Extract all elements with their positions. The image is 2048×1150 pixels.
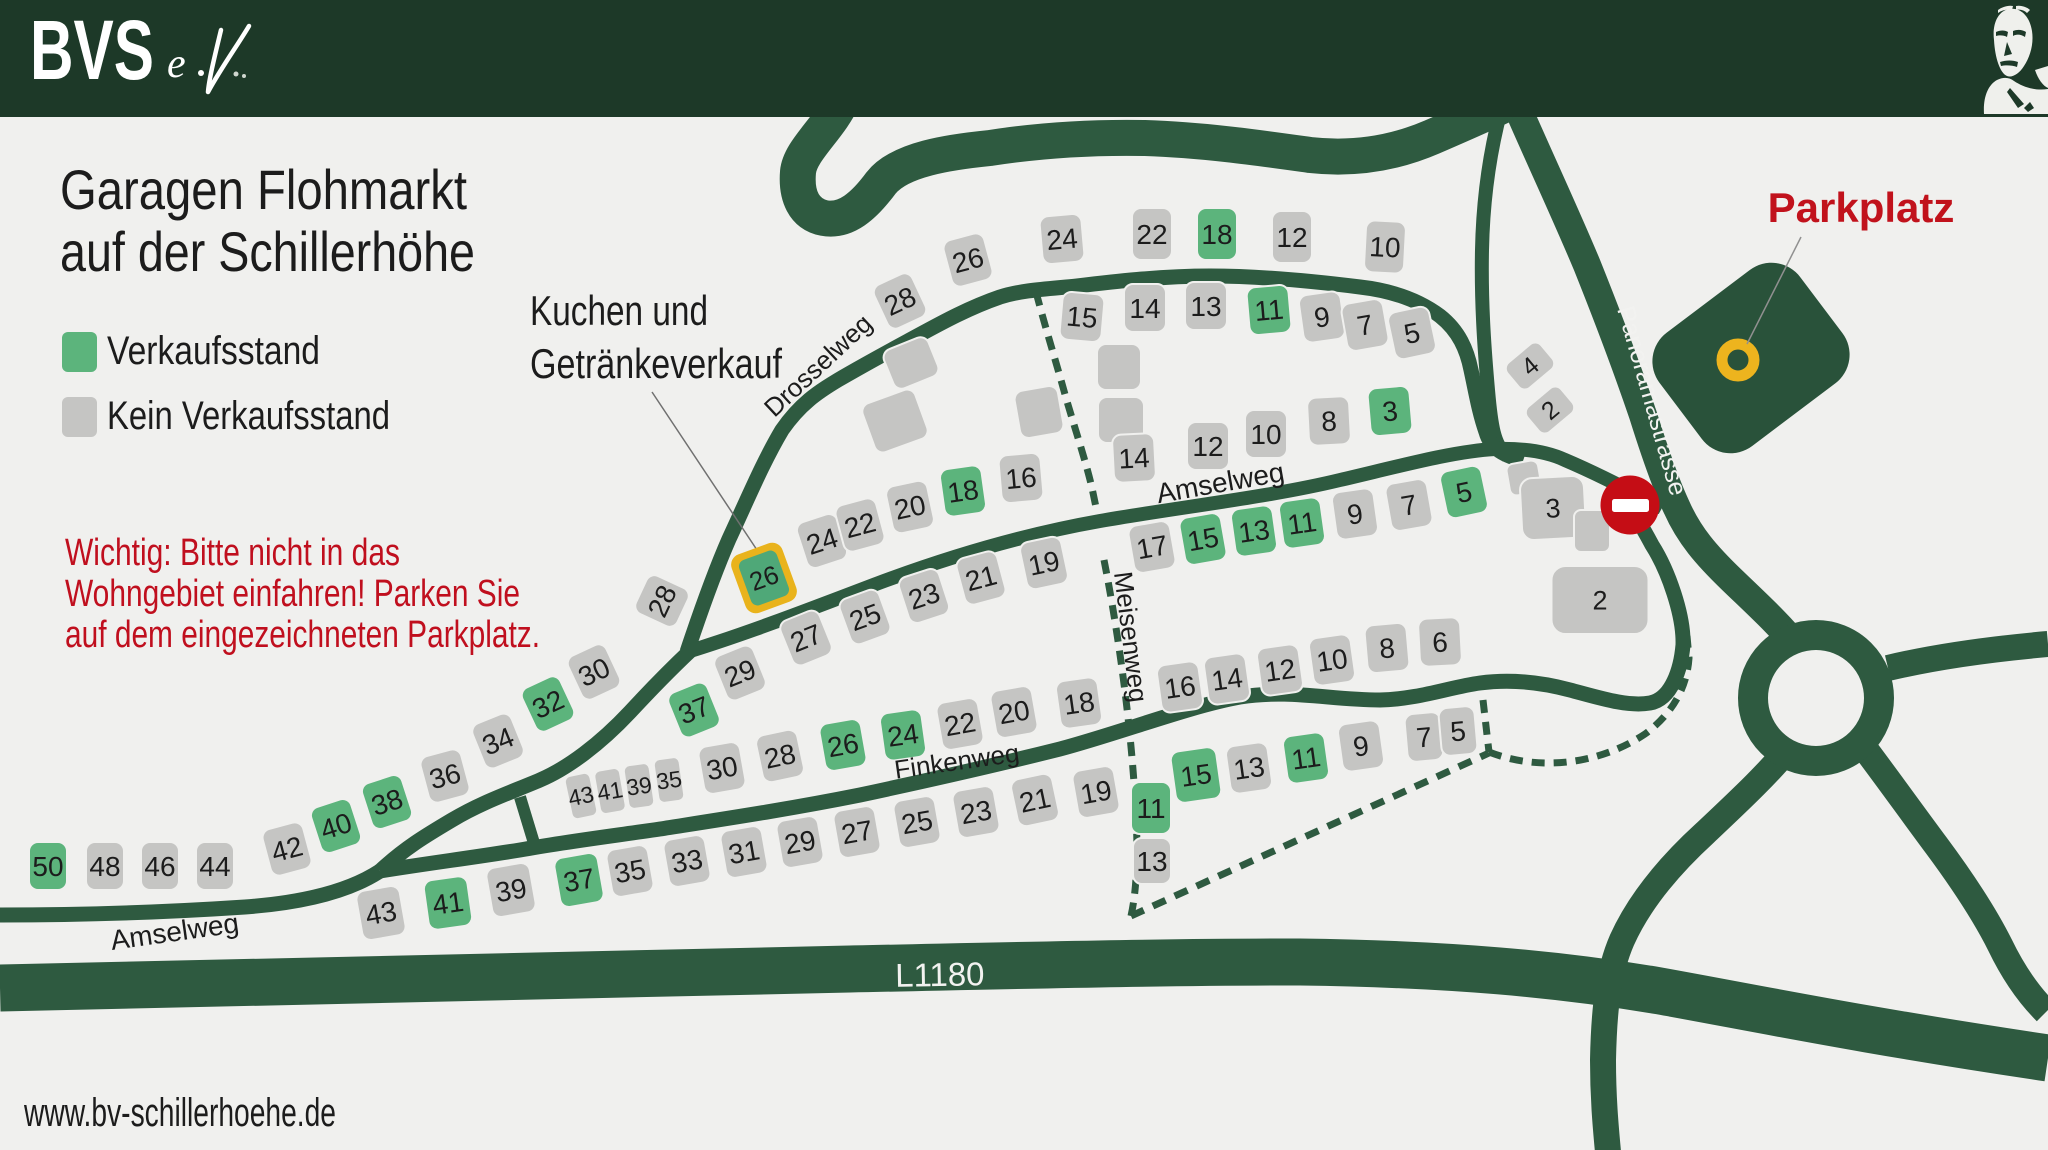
svg-text:13: 13 <box>1190 291 1221 322</box>
svg-text:3: 3 <box>1545 493 1562 524</box>
svg-text:20: 20 <box>996 694 1032 730</box>
svg-text:22: 22 <box>942 706 978 742</box>
svg-text:13: 13 <box>1236 514 1271 549</box>
svg-text:8: 8 <box>1320 405 1337 437</box>
svg-text:18: 18 <box>945 474 980 509</box>
svg-text:43: 43 <box>363 895 399 931</box>
svg-text:e: e <box>167 41 186 87</box>
svg-text:21: 21 <box>1017 782 1054 819</box>
svg-text:16: 16 <box>1162 670 1197 705</box>
svg-text:Kein Verkaufsstand: Kein Verkaufsstand <box>107 394 390 438</box>
svg-text:15: 15 <box>1065 301 1099 335</box>
svg-text:43: 43 <box>566 781 596 812</box>
svg-text:12: 12 <box>1192 431 1223 462</box>
svg-text:12: 12 <box>1262 653 1297 688</box>
svg-text:14: 14 <box>1209 662 1244 697</box>
svg-text:3: 3 <box>1381 395 1399 427</box>
svg-text:39: 39 <box>493 872 529 908</box>
svg-text:29: 29 <box>782 824 818 860</box>
svg-text:27: 27 <box>839 814 875 850</box>
svg-text:13: 13 <box>1231 751 1266 786</box>
svg-text:24: 24 <box>1045 223 1079 257</box>
svg-text:www.bv-schillerhoehe.de: www.bv-schillerhoehe.de <box>23 1091 336 1135</box>
svg-text:14: 14 <box>1118 442 1151 475</box>
svg-text:35: 35 <box>612 853 648 889</box>
svg-text:35: 35 <box>655 765 684 794</box>
svg-text:41: 41 <box>595 776 625 806</box>
svg-text:48: 48 <box>89 851 120 882</box>
svg-text:10: 10 <box>1314 643 1349 678</box>
svg-text:18: 18 <box>1061 686 1096 721</box>
svg-text:BVS: BVS <box>30 3 154 97</box>
svg-text:Getränkeverkauf: Getränkeverkauf <box>530 340 782 387</box>
svg-text:auf dem eingezeichneten Parkpl: auf dem eingezeichneten Parkplatz. <box>65 614 540 656</box>
svg-text:16: 16 <box>1004 462 1038 496</box>
svg-text:11: 11 <box>1253 294 1285 327</box>
svg-text:15: 15 <box>1178 758 1213 793</box>
svg-text:23: 23 <box>958 794 994 830</box>
svg-text:11: 11 <box>1136 793 1165 824</box>
svg-text:12: 12 <box>1276 222 1307 253</box>
svg-text:50: 50 <box>32 851 63 882</box>
svg-text:Garagen Flohmarkt: Garagen Flohmarkt <box>60 158 467 221</box>
svg-text:19: 19 <box>1078 774 1114 810</box>
svg-text:20: 20 <box>892 489 929 526</box>
svg-text:44: 44 <box>199 851 230 882</box>
svg-text:24: 24 <box>885 718 920 753</box>
svg-text:25: 25 <box>899 804 935 840</box>
svg-text:5: 5 <box>1449 715 1467 747</box>
svg-text:2: 2 <box>1592 585 1607 615</box>
svg-text:11: 11 <box>1285 506 1318 541</box>
svg-text:Wichtig: Bitte nicht in das: Wichtig: Bitte nicht in das <box>65 532 400 574</box>
svg-text:Parkplatz: Parkplatz <box>1768 184 1955 231</box>
svg-text:Wohngebiet einfahren! Parken S: Wohngebiet einfahren! Parken Sie <box>65 573 520 615</box>
svg-text:28: 28 <box>762 738 799 775</box>
svg-text:L1180: L1180 <box>895 955 985 994</box>
svg-text:17: 17 <box>1134 529 1170 565</box>
svg-text:Kuchen und: Kuchen und <box>530 287 708 334</box>
svg-text:26: 26 <box>825 727 861 763</box>
svg-text:22: 22 <box>1136 219 1167 250</box>
svg-text:15: 15 <box>1185 521 1221 557</box>
svg-text:11: 11 <box>1289 741 1322 776</box>
svg-text:10: 10 <box>1369 231 1402 264</box>
svg-text:Verkaufsstand: Verkaufsstand <box>107 329 320 373</box>
svg-text:33: 33 <box>669 843 705 879</box>
svg-text:46: 46 <box>144 851 175 882</box>
svg-text:39: 39 <box>625 771 654 800</box>
svg-text:7: 7 <box>1415 721 1433 753</box>
svg-text:8: 8 <box>1378 632 1396 664</box>
svg-text:41: 41 <box>430 886 465 921</box>
svg-text:37: 37 <box>561 862 597 898</box>
svg-text:13: 13 <box>1136 846 1167 877</box>
svg-text:30: 30 <box>704 750 740 786</box>
svg-text:10: 10 <box>1250 419 1281 450</box>
svg-text:31: 31 <box>726 834 762 870</box>
svg-text:14: 14 <box>1129 293 1160 324</box>
svg-text:18: 18 <box>1201 219 1232 250</box>
svg-text:auf der Schillerhöhe: auf der Schillerhöhe <box>60 220 475 283</box>
svg-text:19: 19 <box>1026 545 1063 582</box>
svg-text:6: 6 <box>1431 626 1448 658</box>
